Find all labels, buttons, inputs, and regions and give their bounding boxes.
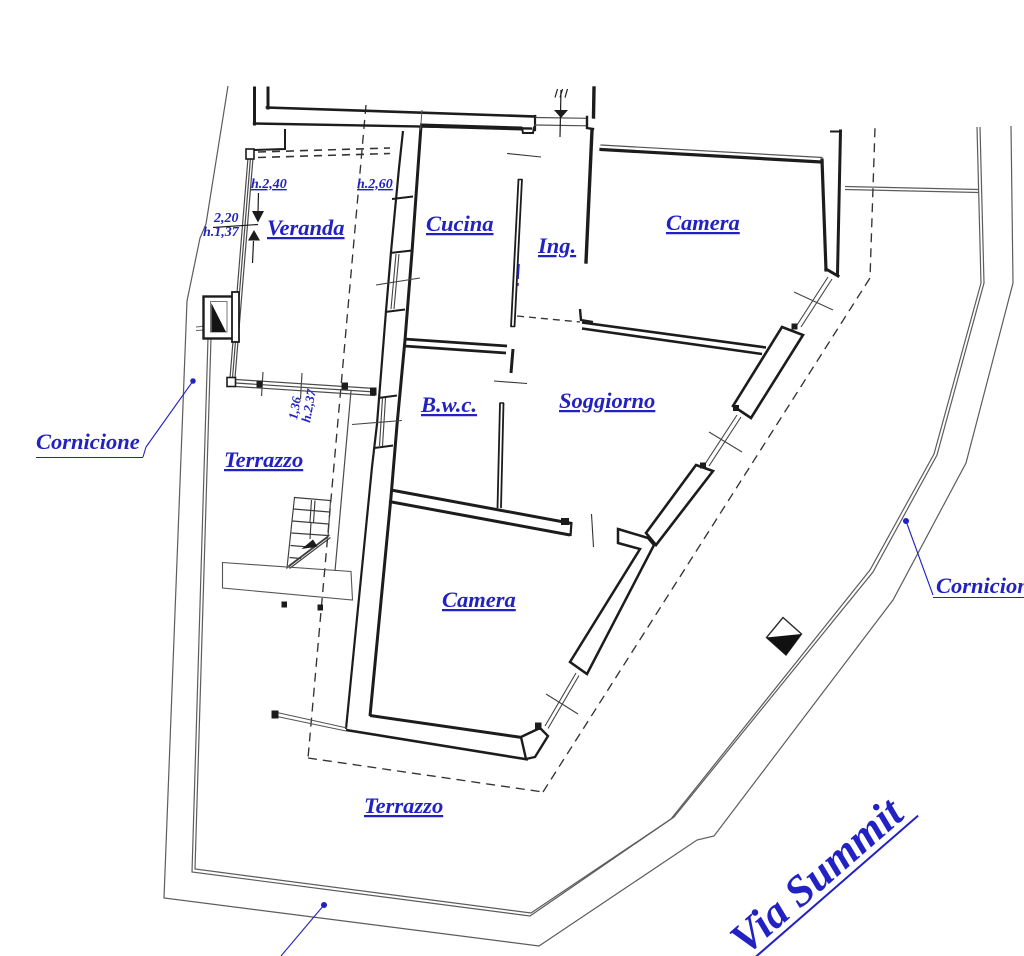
svg-text:Cucina: Cucina	[426, 211, 494, 236]
svg-text:Camera: Camera	[442, 587, 516, 612]
svg-text:Terrazzo: Terrazzo	[224, 447, 303, 472]
svg-text:B.w.c.: B.w.c.	[420, 392, 477, 417]
svg-text:h.2,60: h.2,60	[357, 177, 393, 192]
svg-text:Terrazzo: Terrazzo	[364, 793, 443, 818]
svg-text:2,20: 2,20	[213, 211, 239, 226]
svg-text:Camera: Camera	[666, 210, 740, 235]
svg-text:h.1,37: h.1,37	[203, 225, 240, 240]
svg-text:Via Summit: Via Summit	[721, 787, 914, 956]
svg-text:h.2,40: h.2,40	[251, 177, 287, 192]
svg-text:Ing.: Ing.	[537, 233, 576, 258]
svg-text:Cornicione: Cornicione	[936, 573, 1024, 598]
svg-text:Cornicione: Cornicione	[36, 429, 140, 454]
svg-text:Veranda: Veranda	[267, 215, 345, 240]
svg-text:Soggiorno: Soggiorno	[559, 388, 655, 413]
